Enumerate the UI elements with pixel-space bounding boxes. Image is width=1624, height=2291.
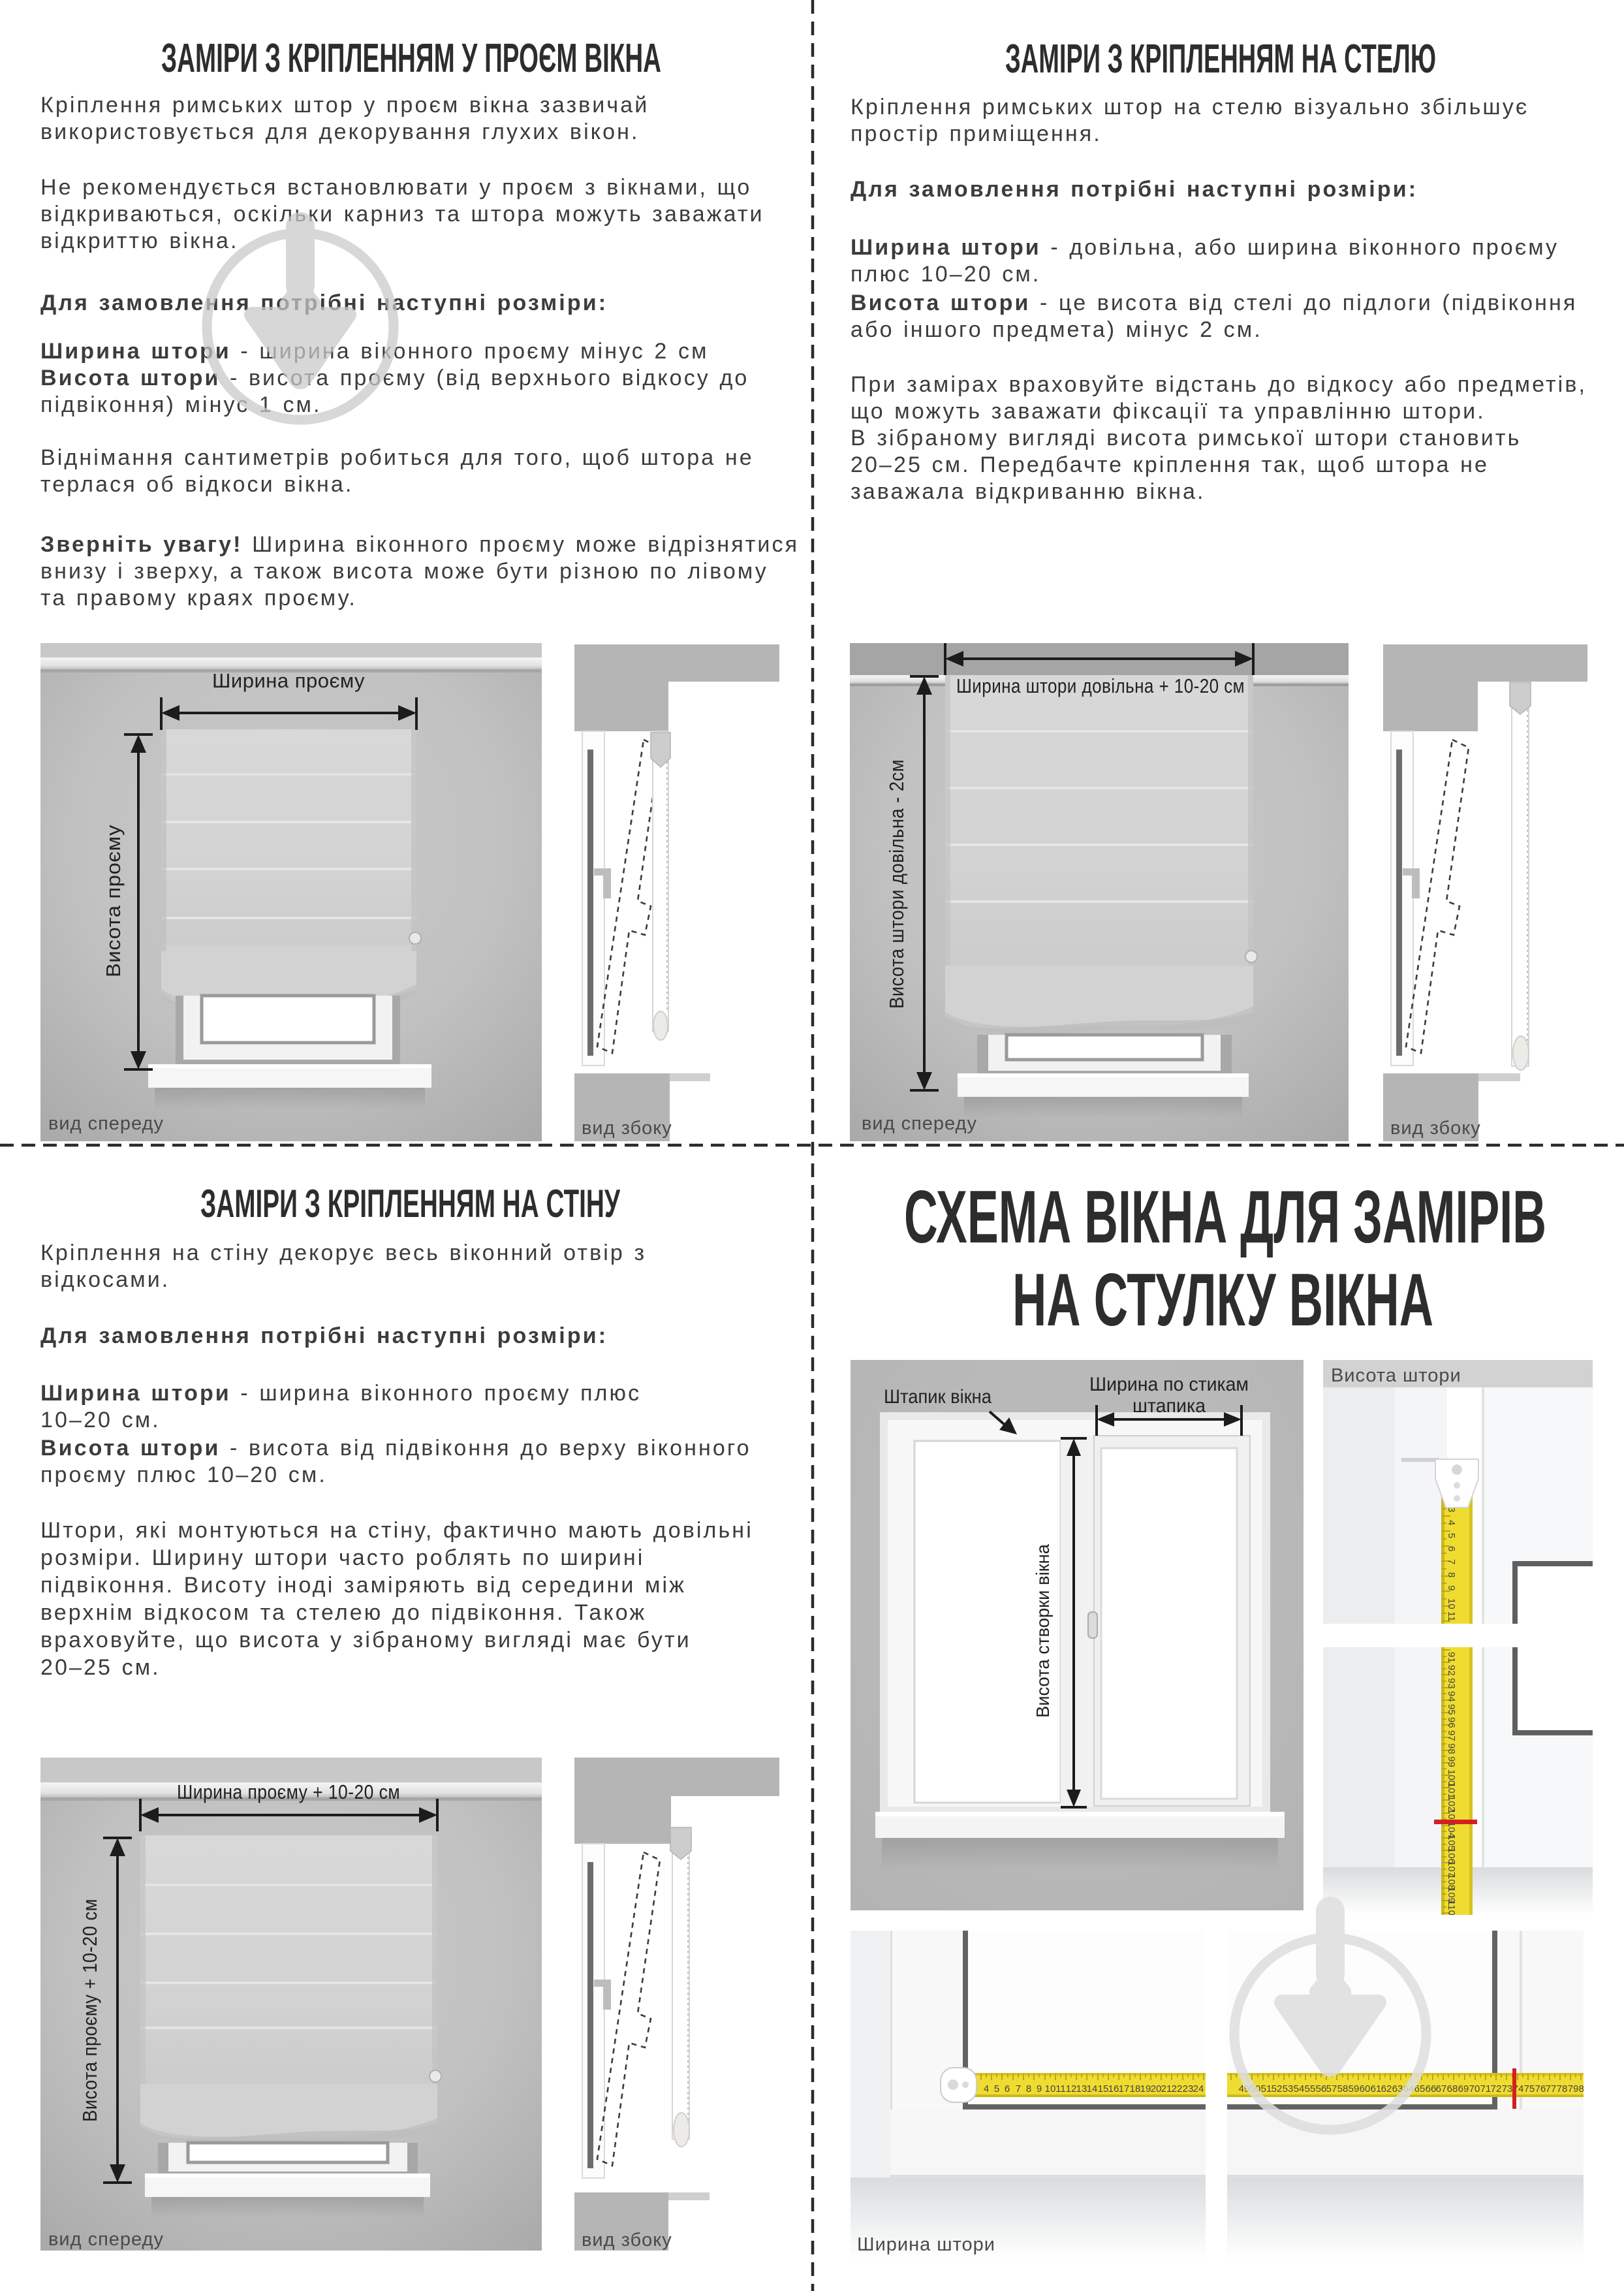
svg-text:проєму плюс 10–20 см.: проєму плюс 10–20 см. bbox=[40, 1462, 327, 1487]
svg-text:відкриттю вікна.: відкриттю вікна. bbox=[40, 229, 239, 253]
svg-text:Ширина штори - ширина віконног: Ширина штори - ширина віконного проєму м… bbox=[40, 339, 709, 364]
svg-text:99: 99 bbox=[1446, 1756, 1457, 1767]
svg-text:Висота штори - це висота від с: Висота штори - це висота від стелі до пі… bbox=[851, 291, 1577, 315]
svg-text:57: 57 bbox=[1326, 2083, 1337, 2094]
svg-text:Віднімання сантиметрів робитьс: Віднімання сантиметрів робиться для того… bbox=[40, 445, 754, 470]
svg-text:Не рекомендується встановлюват: Не рекомендується встановлювати у проєм … bbox=[40, 175, 751, 200]
svg-text:простір приміщення.: простір приміщення. bbox=[851, 121, 1102, 146]
svg-text:Висота штори: Висота штори bbox=[1331, 1365, 1461, 1386]
svg-text:Ширина штори - довільна, або ш: Ширина штори - довільна, або ширина віко… bbox=[851, 235, 1559, 260]
svg-text:Висота проєму: Висота проєму bbox=[102, 825, 125, 977]
svg-text:Ширина проєму + 10-20 см: Ширина проєму + 10-20 см bbox=[177, 1780, 400, 1803]
svg-text:95: 95 bbox=[1446, 1704, 1457, 1715]
svg-text:ЗАМІРИ З КРІПЛЕННЯМ У ПРОЄМ ВІ: ЗАМІРИ З КРІПЛЕННЯМ У ПРОЄМ ВІКНА bbox=[161, 36, 661, 81]
svg-text:Висота створки вікна: Висота створки вікна bbox=[1033, 1544, 1053, 1718]
svg-text:підвіконня. Висоту іноді замір: підвіконня. Висоту іноді заміряють від с… bbox=[40, 1573, 686, 1598]
svg-text:76: 76 bbox=[1535, 2083, 1546, 2094]
svg-text:вид збоку: вид збоку bbox=[1390, 1118, 1481, 1139]
svg-text:70: 70 bbox=[1469, 2083, 1480, 2094]
svg-text:5: 5 bbox=[1446, 1533, 1457, 1538]
svg-text:77: 77 bbox=[1546, 2083, 1557, 2094]
svg-text:5: 5 bbox=[994, 2083, 999, 2094]
svg-text:69: 69 bbox=[1458, 2083, 1469, 2094]
svg-text:враховуйте, що висота у зібран: враховуйте, що висота у зібраному вигляд… bbox=[40, 1628, 691, 1652]
svg-text:54: 54 bbox=[1294, 2083, 1305, 2094]
svg-text:плюс 10–20 см.: плюс 10–20 см. bbox=[851, 262, 1040, 287]
svg-text:60: 60 bbox=[1360, 2083, 1371, 2094]
svg-text:78: 78 bbox=[1557, 2083, 1568, 2094]
svg-text:Кріплення на стіну декорує вес: Кріплення на стіну декорує весь віконний… bbox=[40, 1240, 646, 1265]
svg-text:53: 53 bbox=[1283, 2083, 1294, 2094]
svg-text:або іншого предмета) мінус 2 с: або іншого предмета) мінус 2 см. bbox=[851, 317, 1262, 342]
svg-text:19: 19 bbox=[1140, 2083, 1151, 2094]
svg-text:вид спереду: вид спереду bbox=[862, 1113, 977, 1134]
svg-text:використовується для декоруван: використовується для декорування глухих … bbox=[40, 119, 640, 144]
svg-text:22: 22 bbox=[1172, 2083, 1183, 2094]
svg-text:56: 56 bbox=[1316, 2083, 1327, 2094]
svg-text:79: 79 bbox=[1568, 2083, 1579, 2094]
svg-text:Ширина по стикам: Ширина по стикам bbox=[1089, 1374, 1249, 1395]
svg-text:110: 110 bbox=[1446, 1900, 1457, 1916]
svg-text:8: 8 bbox=[1446, 1572, 1457, 1577]
svg-text:Для замовлення потрібні наступ: Для замовлення потрібні наступні розміри… bbox=[40, 1323, 608, 1348]
svg-text:розміри. Ширину штори часто ро: розміри. Ширину штори часто роблять по ш… bbox=[40, 1545, 644, 1570]
svg-text:62: 62 bbox=[1381, 2083, 1392, 2094]
svg-text:52: 52 bbox=[1272, 2083, 1283, 2094]
svg-text:55: 55 bbox=[1305, 2083, 1316, 2094]
svg-text:що можуть заважати фіксації та: що можуть заважати фіксації та управлінн… bbox=[851, 399, 1486, 424]
svg-text:8: 8 bbox=[1026, 2083, 1031, 2094]
svg-text:24: 24 bbox=[1193, 2083, 1204, 2094]
svg-text:6: 6 bbox=[1446, 1546, 1457, 1551]
svg-text:ЗАМІРИ З КРІПЛЕННЯМ НА СТЕЛЮ: ЗАМІРИ З КРІПЛЕННЯМ НА СТЕЛЮ bbox=[1005, 37, 1436, 82]
svg-text:10–20 см.: 10–20 см. bbox=[40, 1408, 161, 1432]
svg-text:НА СТУЛКУ ВІКНА: НА СТУЛКУ ВІКНА bbox=[1012, 1259, 1433, 1342]
svg-text:Ширина штори: Ширина штори bbox=[857, 2234, 995, 2255]
svg-text:11: 11 bbox=[1446, 1611, 1457, 1622]
svg-text:Кріплення римських штор у проє: Кріплення римських штор у проєм вікна за… bbox=[40, 93, 649, 118]
svg-text:Ширина штори довільна + 10-20: Ширина штори довільна + 10-20 см bbox=[956, 674, 1245, 697]
svg-text:та правому краях проєму.: та правому краях проєму. bbox=[40, 586, 357, 610]
svg-text:91: 91 bbox=[1446, 1652, 1457, 1663]
svg-text:15: 15 bbox=[1098, 2083, 1109, 2094]
svg-text:58: 58 bbox=[1337, 2083, 1349, 2094]
svg-text:14: 14 bbox=[1087, 2083, 1098, 2094]
svg-text:В зібраному вигляді висота рим: В зібраному вигляді висота римської штор… bbox=[851, 426, 1521, 450]
svg-text:12: 12 bbox=[1066, 2083, 1077, 2094]
svg-text:4: 4 bbox=[984, 2083, 989, 2094]
svg-text:ЗАМІРИ З КРІПЛЕННЯМ НА СТІНУ: ЗАМІРИ З КРІПЛЕННЯМ НА СТІНУ bbox=[200, 1182, 620, 1225]
svg-text:СХЕМА ВІКНА ДЛЯ ЗАМІРІВ: СХЕМА ВІКНА ДЛЯ ЗАМІРІВ bbox=[904, 1176, 1546, 1259]
svg-text:заважала відкриванню вікна.: заважала відкриванню вікна. bbox=[851, 479, 1206, 504]
svg-text:Для замовлення потрібні наступ: Для замовлення потрібні наступні розміри… bbox=[851, 177, 1418, 202]
svg-text:18: 18 bbox=[1130, 2083, 1141, 2094]
svg-text:20–25 см.: 20–25 см. bbox=[40, 1655, 161, 1680]
svg-text:20–25 см. Передбачте кріплення: 20–25 см. Передбачте кріплення так, щоб … bbox=[851, 452, 1489, 477]
svg-text:10: 10 bbox=[1446, 1598, 1457, 1609]
svg-text:Висота штори довільна - 2см: Висота штори довільна - 2см bbox=[885, 759, 908, 1009]
svg-text:вид збоку: вид збоку bbox=[582, 2230, 672, 2251]
svg-text:68: 68 bbox=[1447, 2083, 1458, 2094]
svg-text:61: 61 bbox=[1371, 2083, 1382, 2094]
svg-text:51: 51 bbox=[1261, 2083, 1272, 2094]
svg-text:терлася об відкоси вікна.: терлася об відкоси вікна. bbox=[40, 472, 353, 497]
svg-text:75: 75 bbox=[1524, 2083, 1535, 2094]
svg-text:97: 97 bbox=[1446, 1730, 1457, 1741]
svg-text:67: 67 bbox=[1436, 2083, 1447, 2094]
svg-text:відкосами.: відкосами. bbox=[40, 1267, 170, 1292]
svg-text:73: 73 bbox=[1502, 2083, 1513, 2094]
svg-text:94: 94 bbox=[1446, 1691, 1457, 1702]
svg-text:Висота проєму + 10-20 см: Висота проєму + 10-20 см bbox=[78, 1899, 101, 2122]
svg-text:Ширина проєму: Ширина проєму bbox=[212, 669, 365, 692]
svg-text:6: 6 bbox=[1005, 2083, 1010, 2094]
svg-text:7: 7 bbox=[1016, 2083, 1021, 2094]
svg-text:верхнім відкосом та стелею до: верхнім відкосом та стелею до підвіконня… bbox=[40, 1600, 646, 1625]
svg-text:21: 21 bbox=[1161, 2083, 1172, 2094]
svg-text:Висота штори - висота проєму (: Висота штори - висота проєму (від верхнь… bbox=[40, 366, 749, 390]
svg-text:вид спереду: вид спереду bbox=[48, 1113, 164, 1134]
svg-text:внизу і зверху, а також висота: внизу і зверху, а також висота може бути… bbox=[40, 559, 768, 584]
svg-text:Зверніть увагу! Ширина віконно: Зверніть увагу! Ширина віконного проєму … bbox=[40, 532, 799, 557]
svg-text:72: 72 bbox=[1491, 2083, 1502, 2094]
svg-text:10: 10 bbox=[1045, 2083, 1056, 2094]
svg-text:Штапик вікна: Штапик вікна bbox=[884, 1386, 992, 1408]
svg-text:Кріплення римських штор на сте: Кріплення римських штор на стелю візуаль… bbox=[851, 95, 1529, 119]
svg-text:93: 93 bbox=[1446, 1678, 1457, 1689]
svg-text:71: 71 bbox=[1480, 2083, 1491, 2094]
svg-text:98: 98 bbox=[1446, 1743, 1457, 1754]
svg-text:17: 17 bbox=[1119, 2083, 1130, 2094]
svg-text:вид спереду: вид спереду bbox=[48, 2229, 164, 2250]
svg-text:При замірах враховуйте відстан: При замірах враховуйте відстань до відко… bbox=[851, 372, 1587, 397]
svg-text:4: 4 bbox=[1446, 1520, 1457, 1525]
svg-text:59: 59 bbox=[1349, 2083, 1360, 2094]
svg-text:9: 9 bbox=[1446, 1585, 1457, 1590]
svg-text:11: 11 bbox=[1055, 2083, 1066, 2094]
svg-text:штапика: штапика bbox=[1132, 1395, 1206, 1417]
svg-text:16: 16 bbox=[1108, 2083, 1119, 2094]
svg-text:20: 20 bbox=[1151, 2083, 1162, 2094]
svg-text:вид збоку: вид збоку bbox=[582, 1118, 672, 1139]
svg-text:7: 7 bbox=[1446, 1559, 1457, 1564]
svg-text:Висота штори - висота від підв: Висота штори - висота від підвіконня до … bbox=[40, 1436, 751, 1461]
svg-text:13: 13 bbox=[1076, 2083, 1087, 2094]
svg-text:9: 9 bbox=[1037, 2083, 1042, 2094]
svg-text:96: 96 bbox=[1446, 1717, 1457, 1728]
svg-text:23: 23 bbox=[1183, 2083, 1194, 2094]
svg-text:Штори, які монтуються на стіну: Штори, які монтуються на стіну, фактично… bbox=[40, 1518, 753, 1543]
svg-text:відкриваються, оскільки карниз: відкриваються, оскільки карниз та штора … bbox=[40, 202, 764, 227]
svg-text:Ширина штори - ширина віконног: Ширина штори - ширина віконного проєму п… bbox=[40, 1381, 641, 1406]
svg-text:92: 92 bbox=[1446, 1665, 1457, 1676]
svg-text:66: 66 bbox=[1426, 2083, 1437, 2094]
